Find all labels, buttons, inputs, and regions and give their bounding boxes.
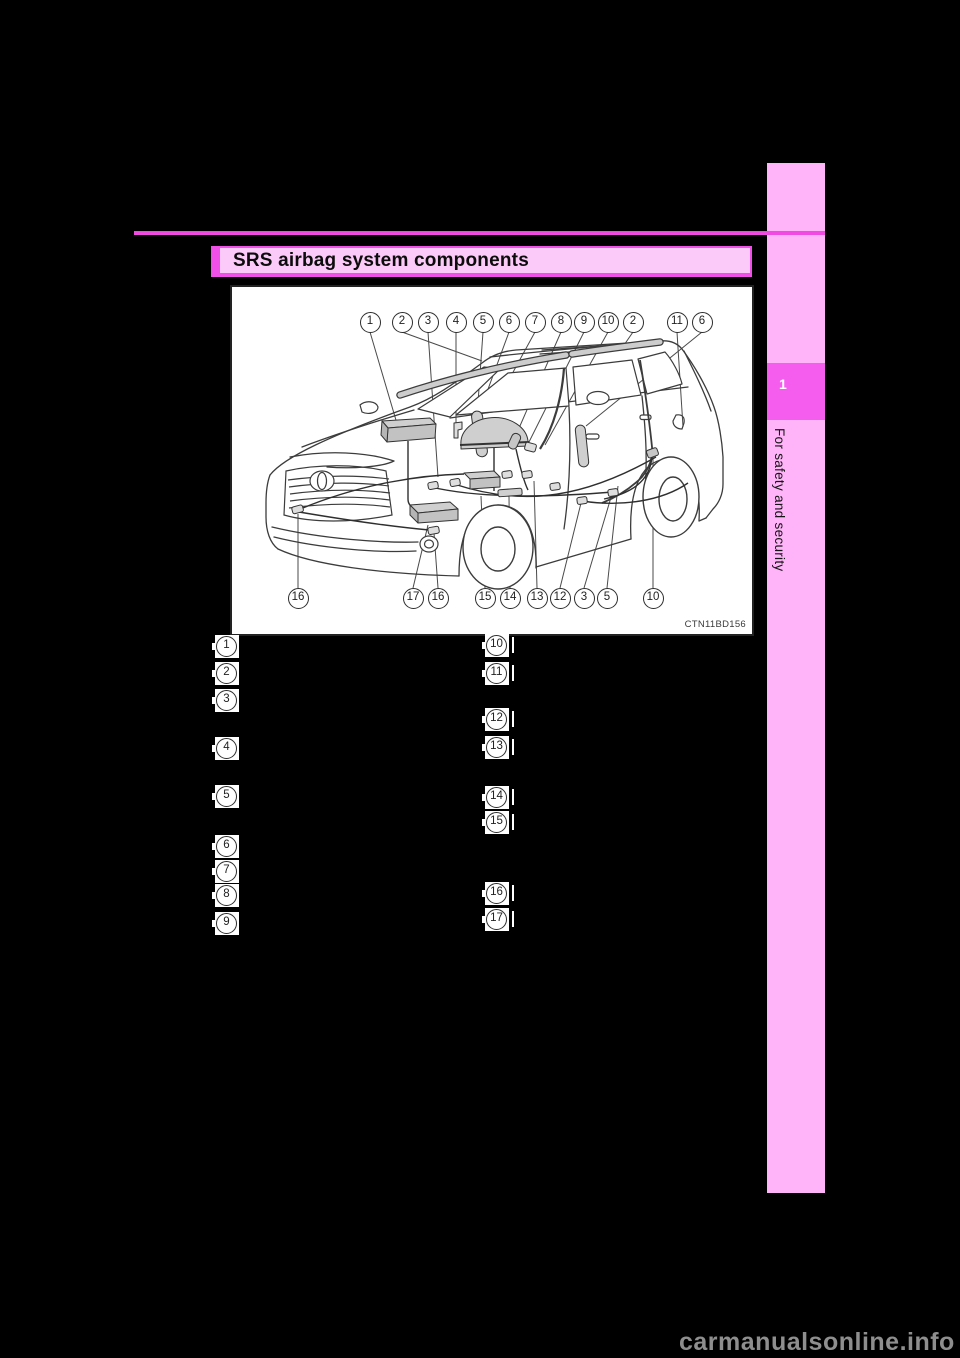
legend-item: 11 [485,662,509,685]
chapter-number-box: 1 [767,363,825,420]
legend-item: 12 [485,708,509,731]
legend-item-tab [212,697,215,704]
legend-item-sliver [512,711,514,727]
legend-item-number: 5 [216,786,237,807]
legend-item: 2 [215,662,239,685]
legend-item: 5 [215,785,239,808]
manual-page: SRS airbag system components [0,0,960,1358]
legend-item: 3 [215,689,239,712]
chapter-number: 1 [779,376,787,392]
legend-item-tab [482,642,485,649]
legend-item: 8 [215,884,239,907]
legend-item-number: 8 [216,885,237,906]
legend-item-number: 17 [486,909,507,930]
legend-item-sliver [512,789,514,805]
legend-item-sliver [512,739,514,755]
callout-circle: 3 [574,588,595,609]
legend-item-number: 16 [486,883,507,904]
legend-item: 10 [485,634,509,657]
callout-circle: 2 [392,312,413,333]
car-diagram [232,287,752,634]
legend-item-tab [212,793,215,800]
legend-item-number: 10 [486,635,507,656]
chapter-title-vertical: For safety and security [772,428,787,571]
callout-circle: 6 [499,312,520,333]
callout-circle: 17 [403,588,424,609]
legend-item-number: 2 [216,663,237,684]
legend-item-tab [482,890,485,897]
callout-circle: 5 [473,312,494,333]
legend-item-number: 3 [216,690,237,711]
legend-item: 15 [485,811,509,834]
legend-item: 6 [215,835,239,858]
callout-circle: 12 [550,588,571,609]
figure-code: CTN11BD156 [685,619,746,630]
callout-circle: 10 [598,312,619,333]
legend-item-number: 14 [486,787,507,808]
legend-item-tab [482,716,485,723]
legend-item-sliver [512,665,514,681]
banner-accent-bar [211,248,220,273]
legend-item: 14 [485,786,509,809]
callout-circle: 16 [428,588,449,609]
legend-item-tab [482,819,485,826]
section-title: SRS airbag system components [233,250,529,272]
site-watermark[interactable]: carmanualsonline.info [679,1328,955,1357]
legend-item-sliver [512,637,514,653]
legend-item-tab [482,794,485,801]
legend-item-tab [212,643,215,650]
legend-item-tab [212,745,215,752]
callout-circle: 6 [692,312,713,333]
legend-item-tab [212,843,215,850]
legend-item-tab [212,920,215,927]
legend-item: 13 [485,736,509,759]
legend-item-number: 15 [486,812,507,833]
airbag-components-figure: 123456789102116 161716151413123510 CTN11… [230,285,754,636]
callout-circle: 8 [551,312,572,333]
legend-item-sliver [512,885,514,901]
legend-item: 7 [215,860,239,883]
legend-item: 1 [215,635,239,658]
section-title-banner: SRS airbag system components [211,246,752,277]
legend-item: 16 [485,882,509,905]
legend-item: 9 [215,912,239,935]
car-windows [418,352,682,417]
legend-item-number: 7 [216,861,237,882]
legend-item: 17 [485,908,509,931]
callout-circle: 5 [597,588,618,609]
legend-item-number: 11 [486,663,507,684]
callout-circle: 7 [525,312,546,333]
legend-item-number: 9 [216,913,237,934]
callout-circle: 16 [288,588,309,609]
legend-item-tab [212,892,215,899]
callout-circle: 13 [527,588,548,609]
callout-circle: 1 [360,312,381,333]
callout-circle: 11 [667,312,688,333]
legend-item-number: 13 [486,737,507,758]
legend-item: 4 [215,737,239,760]
legend-item-sliver [512,911,514,927]
legend-item-number: 1 [216,636,237,657]
legend-item-number: 12 [486,709,507,730]
legend-item-number: 6 [216,836,237,857]
callout-circle: 9 [574,312,595,333]
legend-item-tab [482,670,485,677]
chapter-rule [134,231,825,235]
legend-item-tab [482,744,485,751]
callout-circle: 15 [475,588,496,609]
legend-item-number: 4 [216,738,237,759]
legend-item-sliver [512,814,514,830]
legend-item-tab [212,670,215,677]
legend-item-tab [212,868,215,875]
callout-circle: 4 [446,312,467,333]
callout-circle: 14 [500,588,521,609]
callout-circle: 3 [418,312,439,333]
legend-item-tab [482,916,485,923]
callout-circle: 2 [623,312,644,333]
callout-circle: 10 [643,588,664,609]
chapter-sidebar: 1 For safety and security [767,163,825,1193]
